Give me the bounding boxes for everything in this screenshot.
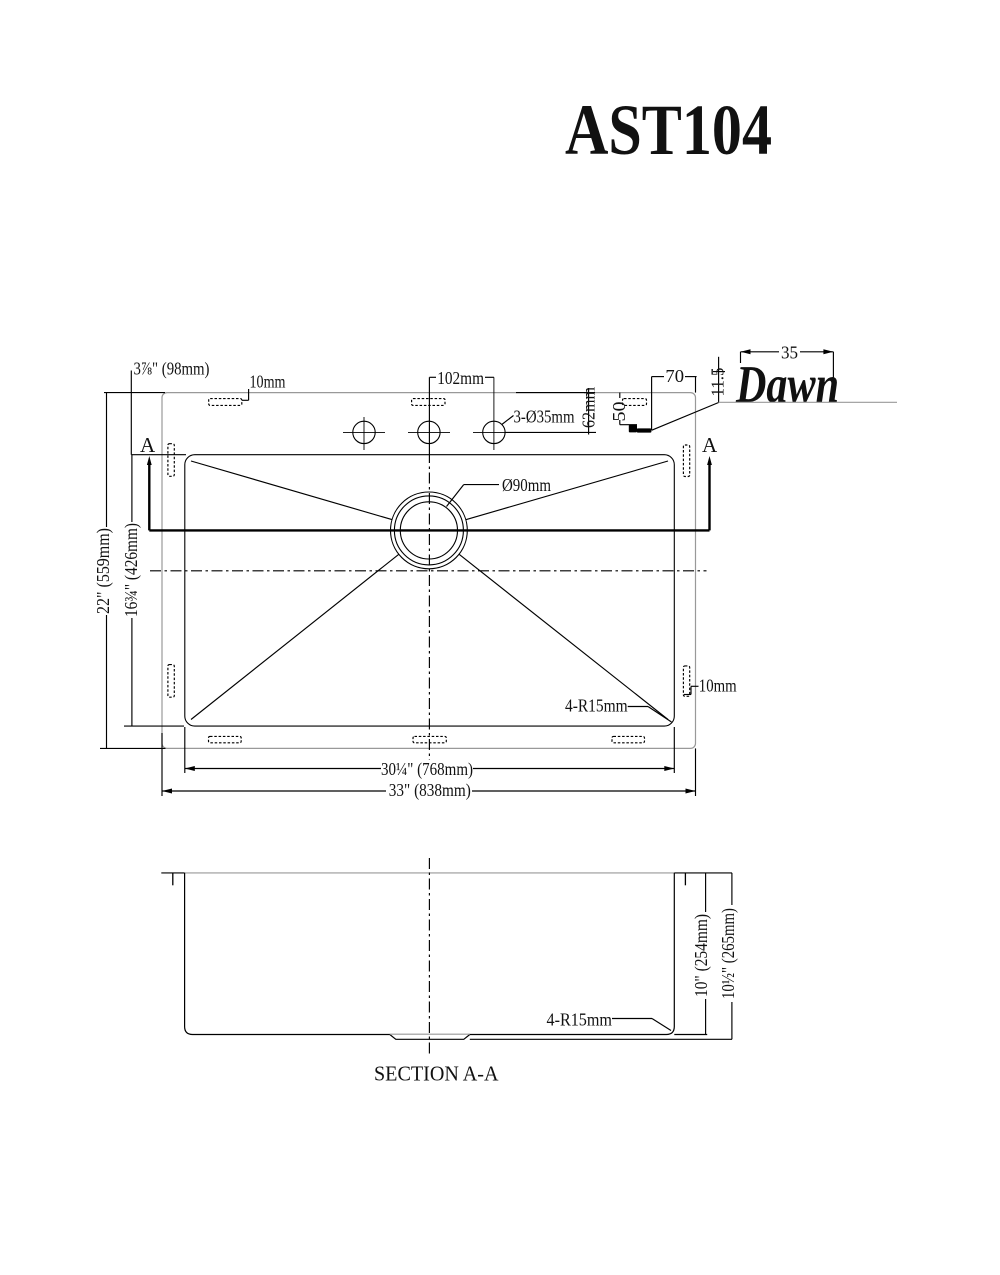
svg-text:Dawn: Dawn (735, 356, 839, 414)
svg-text:22" (559mm): 22" (559mm) (93, 528, 113, 614)
svg-text:Ø90mm: Ø90mm (502, 475, 551, 495)
svg-text:10mm: 10mm (699, 676, 737, 696)
svg-text:16¾" (426mm): 16¾" (426mm) (121, 523, 141, 617)
svg-text:10½" (265mm): 10½" (265mm) (718, 908, 738, 999)
svg-text:102mm: 102mm (437, 368, 484, 388)
svg-text:11.5: 11.5 (708, 367, 728, 396)
svg-text:50: 50 (609, 401, 629, 421)
svg-text:3-Ø35mm: 3-Ø35mm (514, 407, 575, 427)
svg-text:4-R15mm: 4-R15mm (565, 696, 628, 716)
svg-text:33" (838mm): 33" (838mm) (389, 780, 471, 800)
svg-text:10" (254mm): 10" (254mm) (691, 914, 711, 997)
svg-text:A: A (702, 433, 718, 457)
svg-text:62mm: 62mm (579, 387, 599, 428)
svg-text:4-R15mm: 4-R15mm (547, 1010, 613, 1030)
svg-text:70: 70 (665, 366, 684, 386)
svg-text:3⅞" (98mm): 3⅞" (98mm) (134, 359, 210, 379)
svg-text:SECTION A-A: SECTION A-A (374, 1062, 499, 1086)
svg-text:30¼" (768mm): 30¼" (768mm) (381, 759, 473, 779)
svg-text:10mm: 10mm (250, 372, 286, 392)
svg-text:AST104: AST104 (565, 90, 772, 170)
svg-text:A: A (140, 433, 156, 457)
